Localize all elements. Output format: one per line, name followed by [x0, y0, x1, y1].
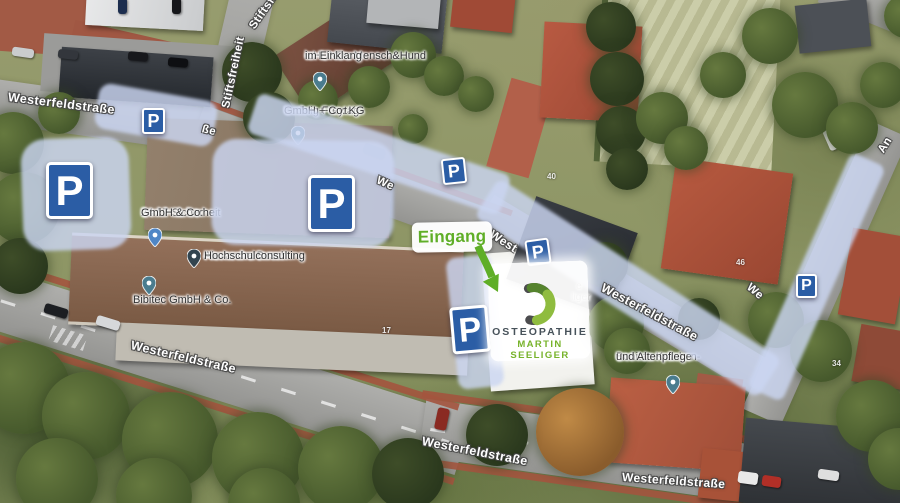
map-car — [737, 471, 758, 486]
map-tree — [590, 52, 644, 106]
house-number-label: 46 — [736, 258, 745, 267]
map-tree — [458, 76, 494, 112]
place-pin-icon[interactable] — [666, 375, 680, 394]
map-tree — [664, 126, 708, 170]
osteopathie-logo-subtitle: MARTIN SEELIGER — [486, 339, 594, 361]
map-car — [128, 51, 149, 62]
house-number-label: 40 — [547, 172, 556, 181]
parking-sign: P — [449, 304, 491, 354]
map-tree — [536, 388, 624, 476]
map-tree — [860, 62, 900, 108]
map-tree — [826, 102, 878, 154]
map-car — [168, 57, 189, 68]
map-tree — [298, 426, 384, 503]
parking-sign: P — [308, 175, 355, 232]
parking-sign: P — [46, 162, 93, 219]
entrance-arrow-icon — [450, 238, 520, 308]
map-tree — [348, 66, 390, 108]
map-car — [118, 0, 127, 14]
map-tree — [606, 148, 648, 190]
parking-sign: P — [796, 274, 817, 298]
map-canvas: PPPPPPPWesterfeldstraßeWesterfeldstraßeW… — [0, 0, 900, 503]
map-tree — [742, 8, 798, 64]
place-pin-icon[interactable] — [187, 249, 201, 268]
place-label-line: GmbH & Co. — [141, 207, 203, 219]
parking-sign: P — [142, 108, 165, 134]
map-car — [172, 0, 181, 14]
map-tree — [700, 52, 746, 98]
map-tree — [586, 2, 636, 52]
place-label-line: und Altenpflege — [616, 351, 692, 363]
map-building-roof — [661, 157, 793, 284]
place-pin-icon[interactable] — [142, 276, 156, 295]
place-label-line: Bibitec GmbH & Co. — [133, 294, 231, 306]
house-number-label: 17 — [382, 326, 391, 335]
place-pin-icon[interactable] — [313, 72, 327, 91]
place-label-line: Hochschulconsulting — [204, 250, 305, 262]
house-number-label: 34 — [832, 359, 841, 368]
map-car — [58, 49, 79, 60]
osteopathie-logo-title: OSTEOPATHIE — [486, 326, 594, 338]
place-pin-icon[interactable] — [148, 228, 162, 247]
place-label-line: im Einklang — [305, 50, 362, 62]
map-building-roof — [795, 0, 872, 54]
parking-sign: P — [441, 157, 468, 185]
